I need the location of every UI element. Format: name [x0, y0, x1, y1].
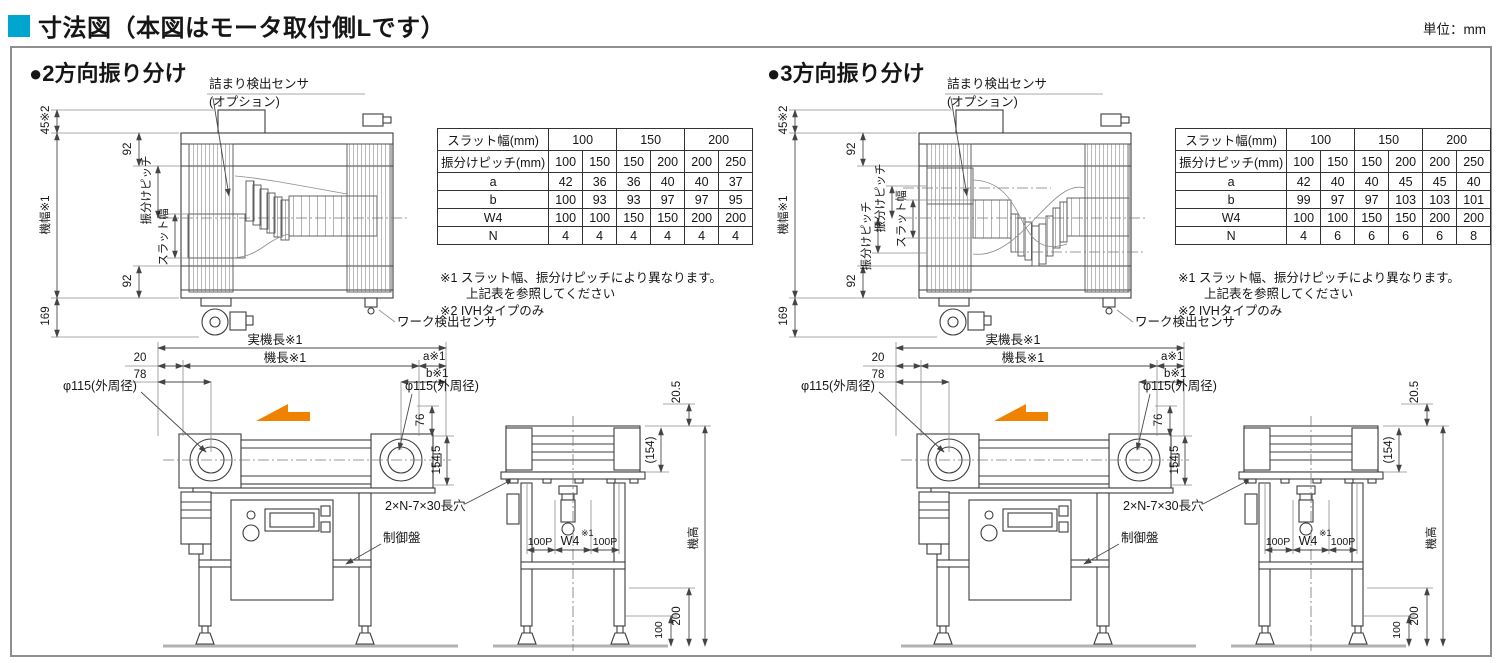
notes-3way: ※1 スラット幅、振分けピッチにより異なります。 上記表を参照してください ※2… — [1178, 270, 1460, 319]
table-cell: 93 — [617, 191, 651, 209]
table-cell: 42 — [1287, 173, 1321, 191]
note-1: ※1 スラット幅、振分けピッチにより異なります。 — [440, 270, 722, 286]
dim-169: 169 — [40, 306, 52, 325]
table-cell: 97 — [651, 191, 685, 209]
table-group-header: 150 — [617, 129, 685, 151]
table-cell: 95 — [719, 191, 753, 209]
panel-heading-2way: ●2方向振り分け — [29, 56, 187, 88]
table-cell: 4 — [1287, 227, 1321, 245]
table-header-row: スラット幅(mm)100150200 — [1176, 129, 1491, 151]
table-cell: 8 — [1457, 227, 1491, 245]
table-cell: 40 — [651, 173, 685, 191]
table-cell: 36 — [617, 173, 651, 191]
table-cell: 4 — [685, 227, 719, 245]
dim-92-bottom: 92 — [846, 275, 858, 288]
diagram-frame: ●2方向振り分け 詰まり検出センサ (オプション) ワーク検出センサ 45※2 … — [10, 46, 1492, 657]
page-header: 寸法図（本図はモータ取付側Lです） — [8, 8, 445, 43]
dim-w4-sup: ※1 — [581, 528, 594, 538]
table-pitch-value: 150 — [1355, 151, 1389, 173]
dim-dia-left: φ115(外周径) — [801, 379, 875, 393]
dim-45: 45※2 — [778, 106, 790, 135]
table-cell: 40 — [1321, 173, 1355, 191]
dim-20-5: 20.5 — [1409, 381, 1421, 403]
dim-w4: W4 — [561, 534, 580, 548]
table-pitch-value: 200 — [1423, 151, 1457, 173]
dim-pitch-lower: 振分けピッチ — [859, 202, 873, 271]
table-row: W4100100150150200200 — [1176, 209, 1491, 227]
dim-100p-left: 100P — [528, 536, 553, 548]
table-header-row: スラット幅(mm)100150200 — [438, 129, 753, 151]
dim-92-top: 92 — [122, 143, 134, 156]
table-group-header: 100 — [1287, 129, 1355, 151]
table-row-label: a — [438, 173, 549, 191]
table-cell: 103 — [1423, 191, 1457, 209]
dim-92-bottom: 92 — [122, 275, 134, 288]
table-cell: 100 — [1287, 209, 1321, 227]
table-pitch-row: 振分けピッチ(mm)100150150200200250 — [438, 151, 753, 173]
table-pitch-value: 100 — [549, 151, 583, 173]
table-pitch-value: 150 — [1321, 151, 1355, 173]
panel-heading-3way: ●3方向振り分け — [767, 56, 925, 88]
page-title: 寸法図（本図はモータ取付側Lです） — [38, 8, 445, 43]
table-cell: 6 — [1355, 227, 1389, 245]
dim-dia-right: φ115(外周径) — [1143, 379, 1217, 393]
table-cell: 97 — [1355, 191, 1389, 209]
note-2: ※2 IVHタイプのみ — [440, 303, 722, 319]
table-cell: 6 — [1389, 227, 1423, 245]
jam-sensor-label: 詰まり検出センサ — [209, 76, 309, 91]
table-row: b1009393979795 — [438, 191, 753, 209]
table-pitch-value: 200 — [1389, 151, 1423, 173]
jam-sensor-option-label: (オプション) — [947, 95, 1018, 109]
dim-154: (154) — [1383, 436, 1395, 463]
table-cell: 45 — [1423, 173, 1457, 191]
note-1b: 上記表を参照してください — [1178, 286, 1460, 302]
control-panel-label: 制御盤 — [383, 530, 421, 545]
dim-76: 76 — [1153, 414, 1165, 427]
table-pitch-row: 振分けピッチ(mm)100150150200200250 — [1176, 151, 1491, 173]
notes-2way: ※1 スラット幅、振分けピッチにより異なります。 上記表を参照してください ※2… — [440, 270, 722, 319]
table-row-label: N — [1176, 227, 1287, 245]
table-row-label: a — [1176, 173, 1287, 191]
dim-machine-width: 機幅※1 — [776, 195, 790, 234]
table-cell: 4 — [549, 227, 583, 245]
table-cell: 97 — [685, 191, 719, 209]
jam-sensor-option-label: (オプション) — [209, 95, 280, 109]
table-pitch-value: 250 — [1457, 151, 1491, 173]
table-cell: 101 — [1457, 191, 1491, 209]
table-pitch-value: 150 — [617, 151, 651, 173]
control-panel-label: 制御盤 — [1121, 530, 1159, 545]
table-cell: 6 — [1423, 227, 1457, 245]
table-cell: 103 — [1389, 191, 1423, 209]
spec-table-3way: スラット幅(mm)100150200振分けピッチ(mm)100150150200… — [1175, 128, 1491, 245]
dim-20: 20 — [134, 352, 147, 364]
dim-a: a※1 — [423, 351, 445, 363]
table-row: a423636404037 — [438, 173, 753, 191]
table-cell: 99 — [1287, 191, 1321, 209]
dim-100p-right: 100P — [1331, 536, 1356, 548]
table-cell: 200 — [1457, 209, 1491, 227]
dim-100p-right: 100P — [593, 536, 618, 548]
dim-20-5: 20.5 — [671, 381, 683, 403]
table-cell: 200 — [719, 209, 753, 227]
table-cell: 37 — [719, 173, 753, 191]
table-row: W4100100150150200200 — [438, 209, 753, 227]
dim-dia-right: φ115(外周径) — [405, 379, 479, 393]
table-cell: 200 — [1423, 209, 1457, 227]
dim-machine-height: 機高 — [1424, 527, 1438, 550]
table-row: a424040454540 — [1176, 173, 1491, 191]
table-cell: 150 — [651, 209, 685, 227]
table-row-label: W4 — [1176, 209, 1287, 227]
table-cell: 93 — [583, 191, 617, 209]
jam-sensor-label: 詰まり検出センサ — [947, 76, 1047, 91]
dim-76: 76 — [415, 414, 427, 427]
dim-slat-width: スラット幅 — [157, 208, 170, 266]
dim-154-5: 154.5 — [1169, 446, 1181, 475]
dim-length: 機長※1 — [264, 350, 306, 365]
table-group-header: 200 — [1423, 129, 1491, 151]
dim-actual-length: 実機長※1 — [986, 332, 1041, 347]
slot-hole-label: 2×N-7×30長穴 — [385, 498, 466, 513]
slot-hole-label: 2×N-7×30長穴 — [1123, 498, 1204, 513]
table-col1-header: スラット幅(mm) — [438, 129, 549, 151]
panel-3way: ●3方向振り分け 詰まり検出センサ (オプション) — [751, 48, 1488, 651]
dim-45: 45※2 — [40, 106, 52, 135]
table-cell: 6 — [1321, 227, 1355, 245]
table-cell: 150 — [617, 209, 651, 227]
table-cell: 100 — [549, 191, 583, 209]
table-group-header: 100 — [549, 129, 617, 151]
dim-machine-height: 機高 — [686, 527, 700, 550]
table-group-header: 150 — [1355, 129, 1423, 151]
dim-200: 200 — [671, 606, 683, 625]
table-pitch-value: 250 — [719, 151, 753, 173]
table-cell: 40 — [1457, 173, 1491, 191]
dim-100: 100 — [1391, 621, 1403, 639]
table-cell: 97 — [1321, 191, 1355, 209]
table-col1-header: スラット幅(mm) — [1176, 129, 1287, 151]
dim-169: 169 — [778, 306, 790, 325]
table-pitch-value: 150 — [583, 151, 617, 173]
panel-2way: ●2方向振り分け 詰まり検出センサ (オプション) ワーク検出センサ 45※2 … — [13, 48, 750, 651]
table-row: N466668 — [1176, 227, 1491, 245]
table-row-label: b — [1176, 191, 1287, 209]
table-cell: 45 — [1389, 173, 1423, 191]
table-cell: 100 — [549, 209, 583, 227]
dim-machine-width: 機幅※1 — [38, 195, 52, 234]
dim-w4: W4 — [1299, 534, 1318, 548]
dim-100: 100 — [653, 621, 665, 639]
note-1: ※1 スラット幅、振分けピッチにより異なります。 — [1178, 270, 1460, 286]
table-row-label: N — [438, 227, 549, 245]
dim-dia-left: φ115(外周径) — [63, 379, 137, 393]
table-cell: 42 — [549, 173, 583, 191]
dim-154: (154) — [645, 436, 657, 463]
unit-label: 単位：mm — [1423, 18, 1486, 38]
note-1b: 上記表を参照してください — [440, 286, 722, 302]
table-cell: 4 — [651, 227, 685, 245]
dim-actual-length: 実機長※1 — [248, 332, 303, 347]
table-cell: 100 — [1321, 209, 1355, 227]
dim-pitch: 振分けピッチ — [139, 156, 153, 225]
dim-100p-left: 100P — [1266, 536, 1291, 548]
table-cell: 4 — [719, 227, 753, 245]
table-pitch-label: 振分けピッチ(mm) — [1176, 151, 1287, 173]
dim-length: 機長※1 — [1002, 350, 1044, 365]
table-cell: 36 — [583, 173, 617, 191]
table-cell: 4 — [617, 227, 651, 245]
table-cell: 4 — [583, 227, 617, 245]
accent-square-icon — [8, 15, 30, 37]
table-row: N444444 — [438, 227, 753, 245]
dim-154-5: 154.5 — [431, 446, 443, 475]
dim-200: 200 — [1409, 606, 1421, 625]
table-pitch-value: 100 — [1287, 151, 1321, 173]
table-cell: 150 — [1355, 209, 1389, 227]
table-cell: 100 — [583, 209, 617, 227]
table-cell: 40 — [1355, 173, 1389, 191]
table-cell: 200 — [685, 209, 719, 227]
dim-92-top: 92 — [846, 143, 858, 156]
dim-pitch-upper: 振分けピッチ — [873, 164, 887, 233]
table-row-label: b — [438, 191, 549, 209]
table-cell: 40 — [685, 173, 719, 191]
dim-w4-sup: ※1 — [1319, 528, 1332, 538]
note-2: ※2 IVHタイプのみ — [1178, 303, 1460, 319]
dim-slat-width: スラット幅 — [895, 190, 908, 248]
table-group-header: 200 — [685, 129, 753, 151]
table-pitch-value: 200 — [685, 151, 719, 173]
table-pitch-label: 振分けピッチ(mm) — [438, 151, 549, 173]
spec-table-2way: スラット幅(mm)100150200振分けピッチ(mm)100150150200… — [437, 128, 753, 245]
table-pitch-value: 200 — [651, 151, 685, 173]
table-cell: 150 — [1389, 209, 1423, 227]
dim-20: 20 — [872, 352, 885, 364]
table-row-label: W4 — [438, 209, 549, 227]
dim-a: a※1 — [1161, 351, 1183, 363]
table-row: b999797103103101 — [1176, 191, 1491, 209]
